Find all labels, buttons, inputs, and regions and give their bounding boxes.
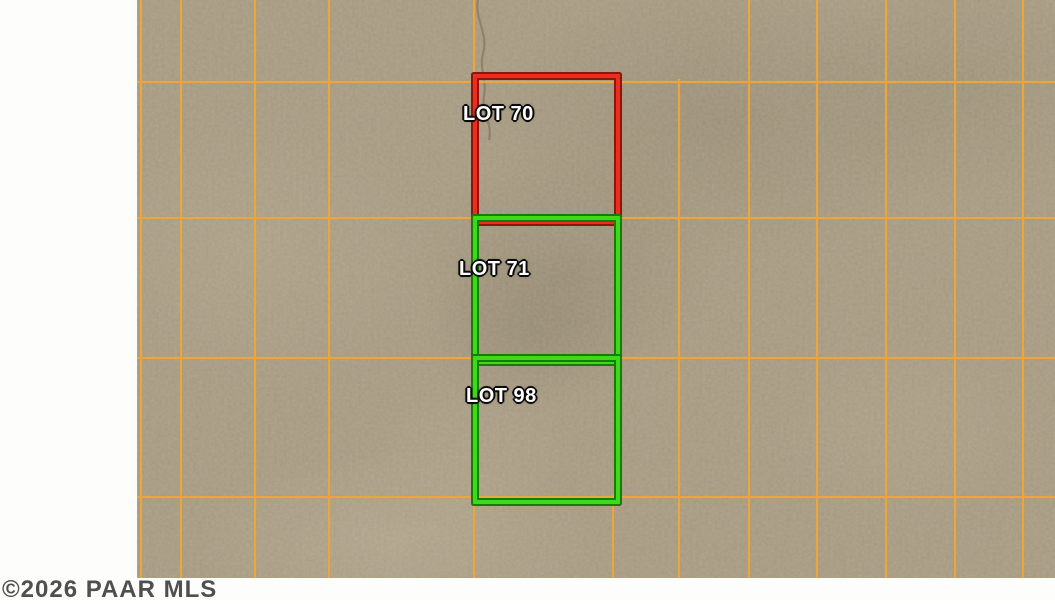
grid-line-vertical xyxy=(254,0,256,578)
grid-line-vertical xyxy=(816,0,818,578)
lot-71-label: LOT 71 xyxy=(459,258,530,281)
lot-98-boundary: LOT 98 xyxy=(473,356,620,504)
grid-line-vertical xyxy=(180,0,182,578)
grid-line-vertical xyxy=(678,79,680,578)
satellite-parcel-map: LOT 70 LOT 71 LOT 98 xyxy=(137,0,1055,578)
lot-70-label: LOT 70 xyxy=(463,103,534,126)
grid-line-vertical xyxy=(328,0,330,578)
lot-70-boundary: LOT 70 xyxy=(473,74,620,224)
mls-listing-photo: LOT 70 LOT 71 LOT 98 ©2026 PAAR MLS xyxy=(0,0,1055,600)
lot-98-label: LOT 98 xyxy=(466,385,537,408)
grid-line-vertical xyxy=(885,0,887,578)
lot-71-boundary: LOT 71 xyxy=(473,216,620,364)
grid-line-vertical xyxy=(1022,0,1024,578)
grid-line-vertical xyxy=(954,0,956,578)
grid-line-vertical xyxy=(140,0,142,578)
grid-line-vertical xyxy=(612,495,614,578)
grid-line-vertical xyxy=(748,0,750,578)
